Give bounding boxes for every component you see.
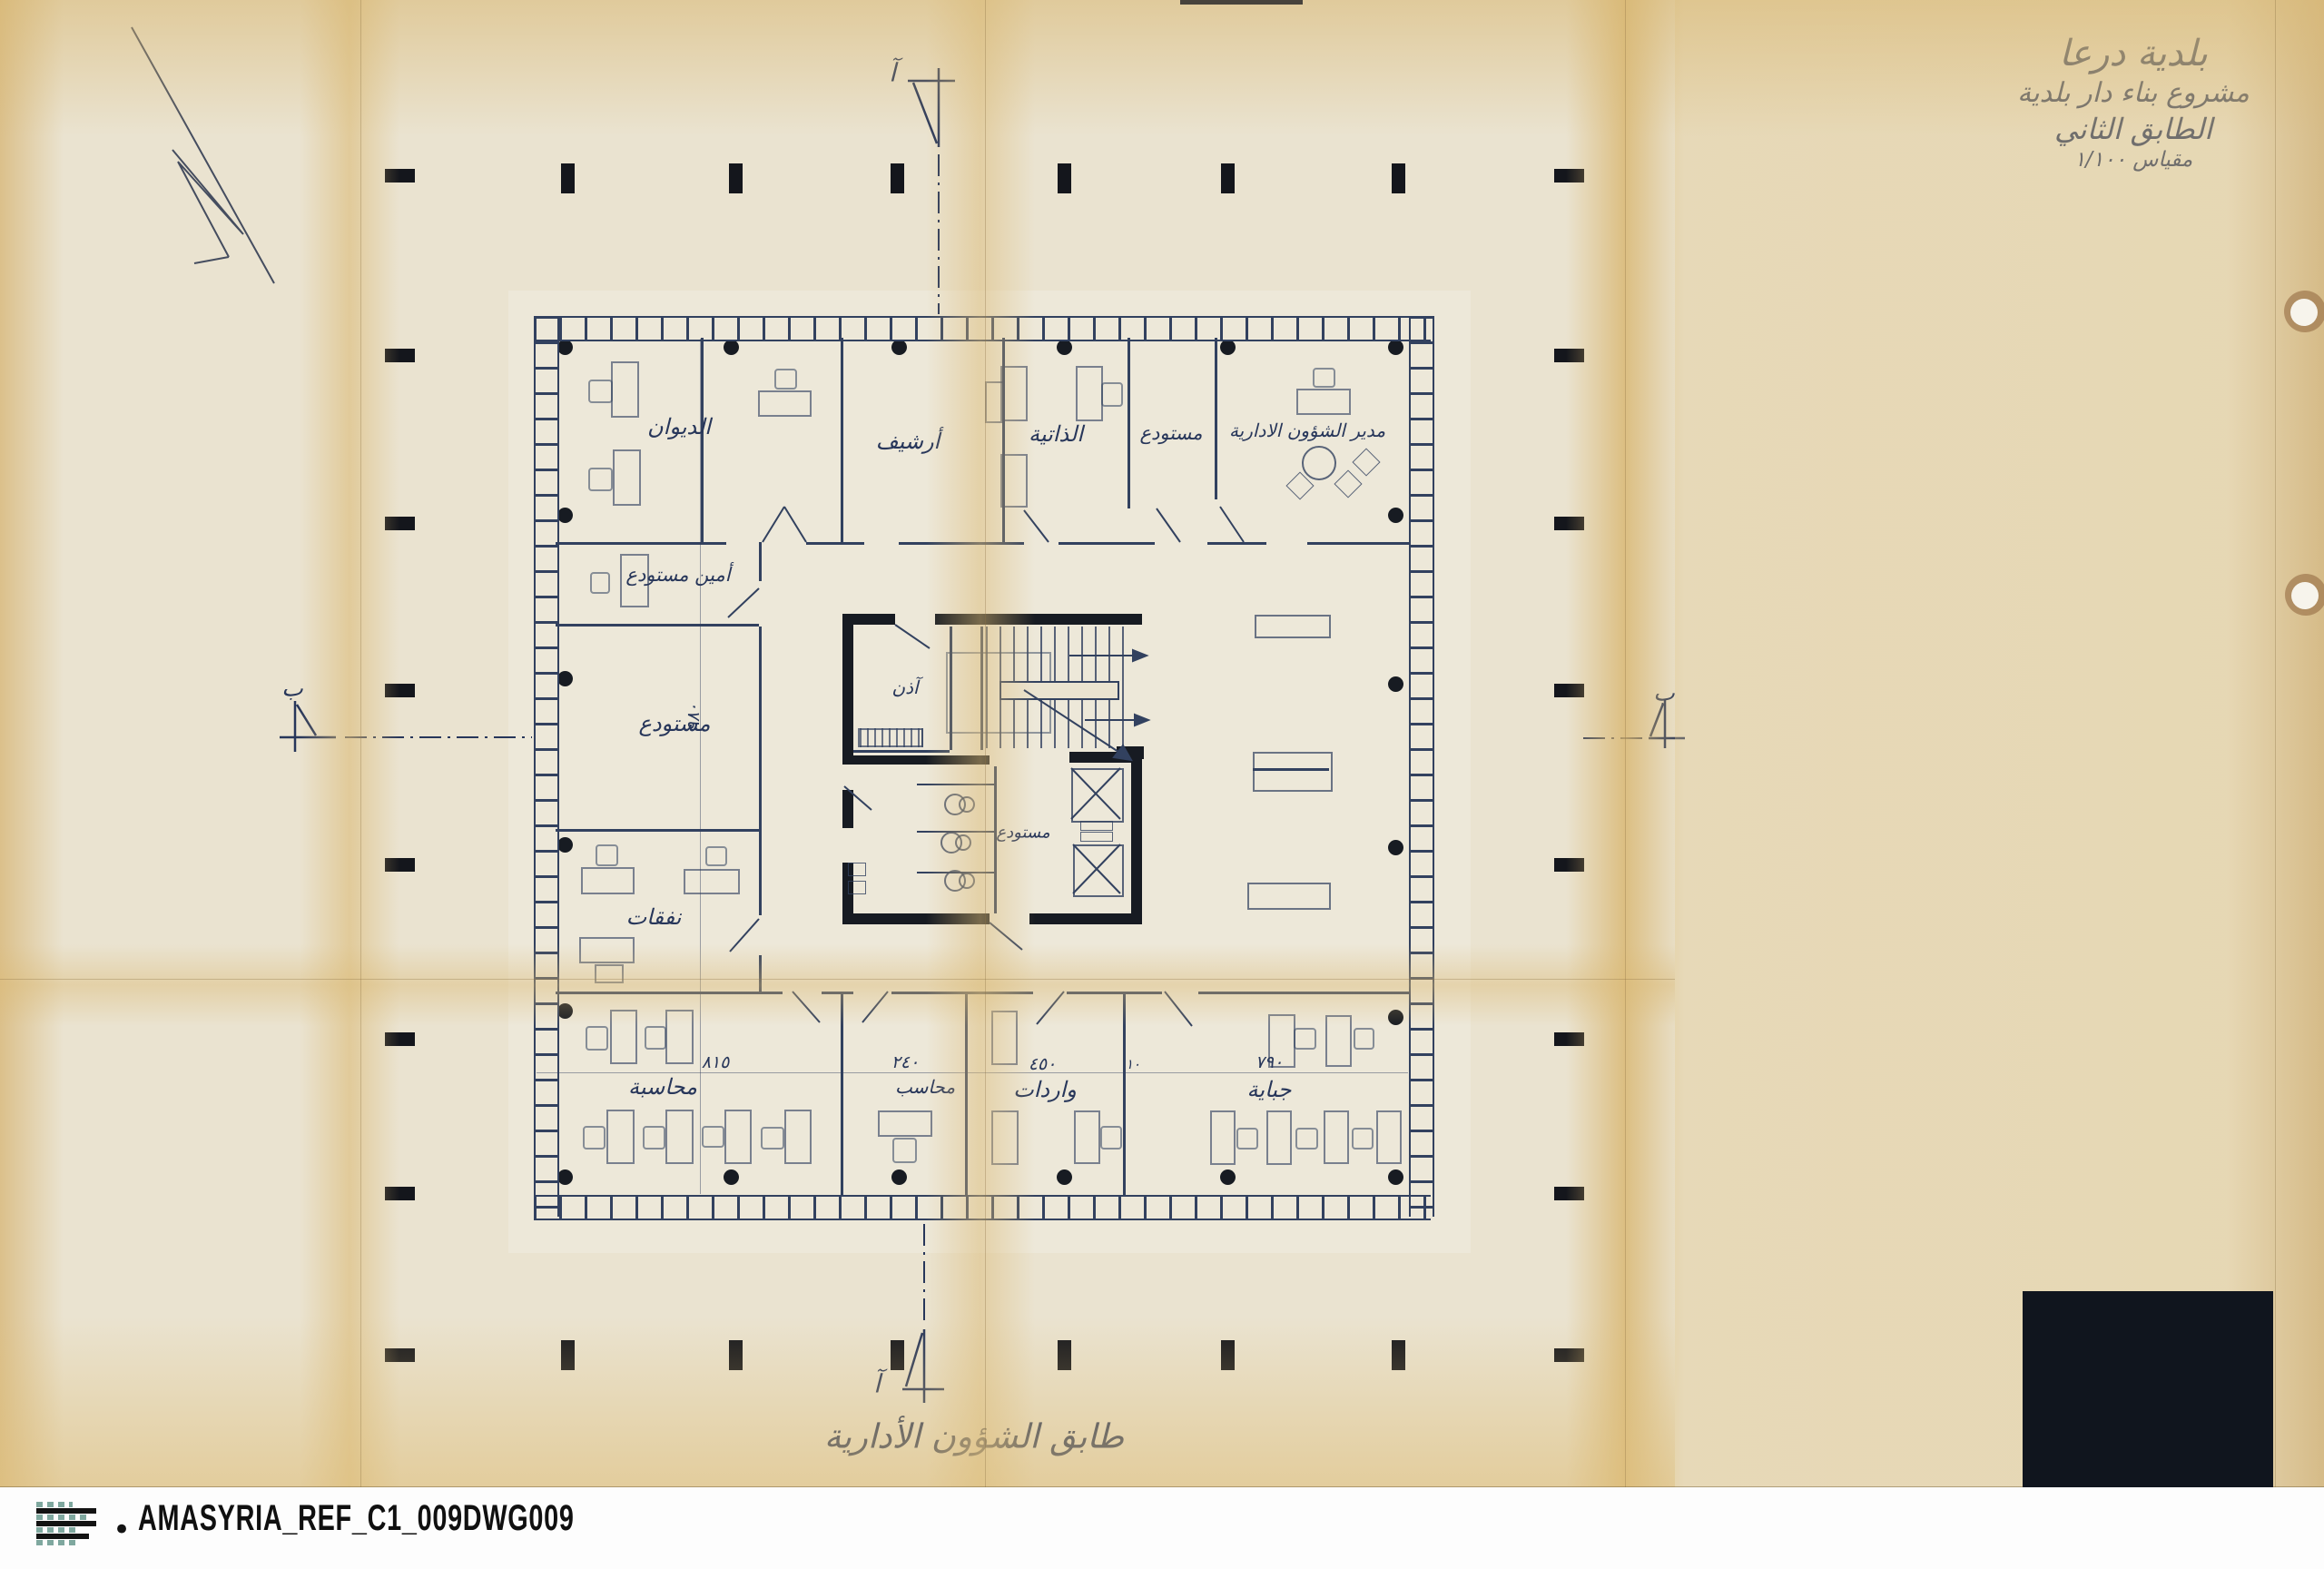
section-letter-bottom: آ [873,1369,881,1399]
stair-direction-arrows [1024,650,1148,760]
footer-strip: • AMASYRIA_REF_C1_009DWG009 [0,1487,2324,1569]
title-project: مشروع بناء دار بلدية [2002,76,2265,111]
title-block: بلدية درعا مشروع بناء دار بلدية الطابق ا… [2002,31,2265,173]
room-label-storekeeper: أمين مستودع [625,564,730,586]
section-letter-right: ب [1653,680,1675,706]
room-label-attendant: آذن [891,676,918,698]
door-swing-lines [728,507,1244,1026]
room-label-revenues: واردات [1013,1077,1077,1102]
logo-row [36,1521,96,1526]
logo-row [36,1527,78,1533]
hole-punch [2290,299,2318,326]
room-label-diwan: الديوان [647,414,711,439]
pencil-scribble-marks [132,27,274,283]
logo-row [36,1502,73,1507]
scanned-floorplan-sheet: الديوان أرشيف الذاتية مستودع مدير الشؤون… [0,0,2324,1569]
dim-partition: ١٠ [1126,1056,1140,1072]
room-label-collection: جباية [1247,1077,1292,1102]
room-label-expenses: نفقات [626,904,682,930]
logo-row [36,1540,75,1545]
title-scale: مقياس ١/١٠٠ [2002,147,2265,173]
room-label-accountant: محاسب [895,1076,955,1098]
room-label-archive: أرشيف [876,429,940,454]
dim-storage-large: ٩٨٠ [684,704,704,732]
section-cut-dashdot-lines [345,154,1645,1324]
dim-collection: ٧٩٠ [1256,1052,1284,1072]
logo-row [36,1534,89,1539]
plan-caption: طابق الشؤون الأدارية [824,1417,1124,1456]
title-floor: الطابق الثاني [2002,111,2265,147]
room-label-storage-small: مستودع [1139,422,1202,444]
dim-accounting: ٨١٥ [702,1052,730,1072]
footer-bullet: • [113,1515,131,1545]
section-letter-left: ب [281,676,303,702]
archive-logo [36,1502,96,1551]
section-cut-flags [280,68,1685,1403]
dim-accountant: ٢٤٠ [891,1052,920,1072]
elevator-x-symbols [1071,768,1120,893]
title-municipality: بلدية درعا [2002,31,2265,76]
room-label-storage-core: مستودع [996,824,1049,843]
scan-black-box [2023,1291,2273,1487]
logo-row [36,1515,87,1520]
reference-code: AMASYRIA_REF_C1_009DWG009 [138,1498,575,1539]
room-label-dhatiya: الذاتية [1029,421,1083,447]
hole-punch [2291,582,2319,609]
room-label-director: مدير الشؤون الادارية [1229,419,1385,441]
scan-top-edge-sliver [1180,0,1303,5]
room-label-accounting: محاسبة [628,1074,697,1100]
section-letter-top: آ [889,58,896,88]
logo-row [36,1508,96,1514]
plan-linework-overlay [0,0,2324,1569]
dim-revenues: ٤٥٠ [1029,1054,1057,1074]
